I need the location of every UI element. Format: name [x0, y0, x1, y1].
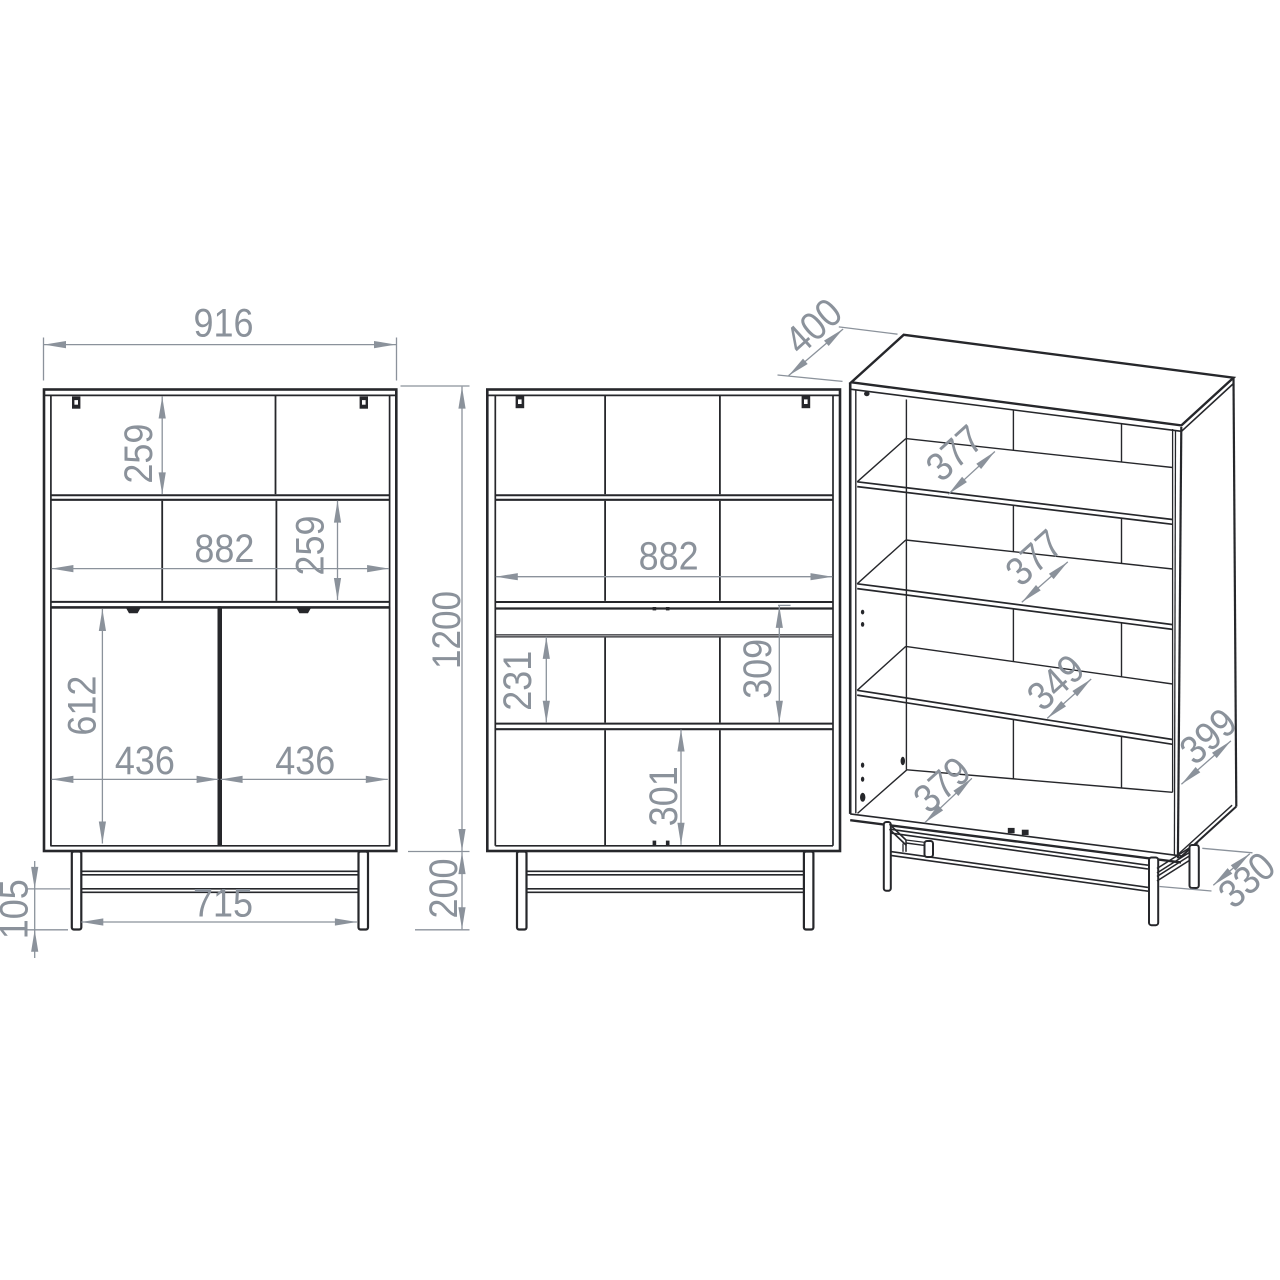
svg-text:882: 882: [639, 535, 699, 579]
svg-text:301: 301: [642, 766, 686, 826]
svg-text:1200: 1200: [425, 591, 469, 669]
svg-text:200: 200: [422, 859, 466, 919]
svg-text:259: 259: [117, 424, 161, 484]
svg-text:715: 715: [193, 882, 253, 926]
svg-text:916: 916: [194, 302, 254, 346]
svg-text:309: 309: [736, 639, 780, 699]
svg-text:259: 259: [288, 516, 332, 576]
svg-text:105: 105: [0, 879, 37, 939]
svg-text:882: 882: [194, 527, 254, 571]
svg-text:612: 612: [61, 676, 105, 736]
svg-text:436: 436: [275, 739, 335, 783]
svg-text:436: 436: [115, 739, 175, 783]
svg-text:231: 231: [496, 651, 540, 711]
